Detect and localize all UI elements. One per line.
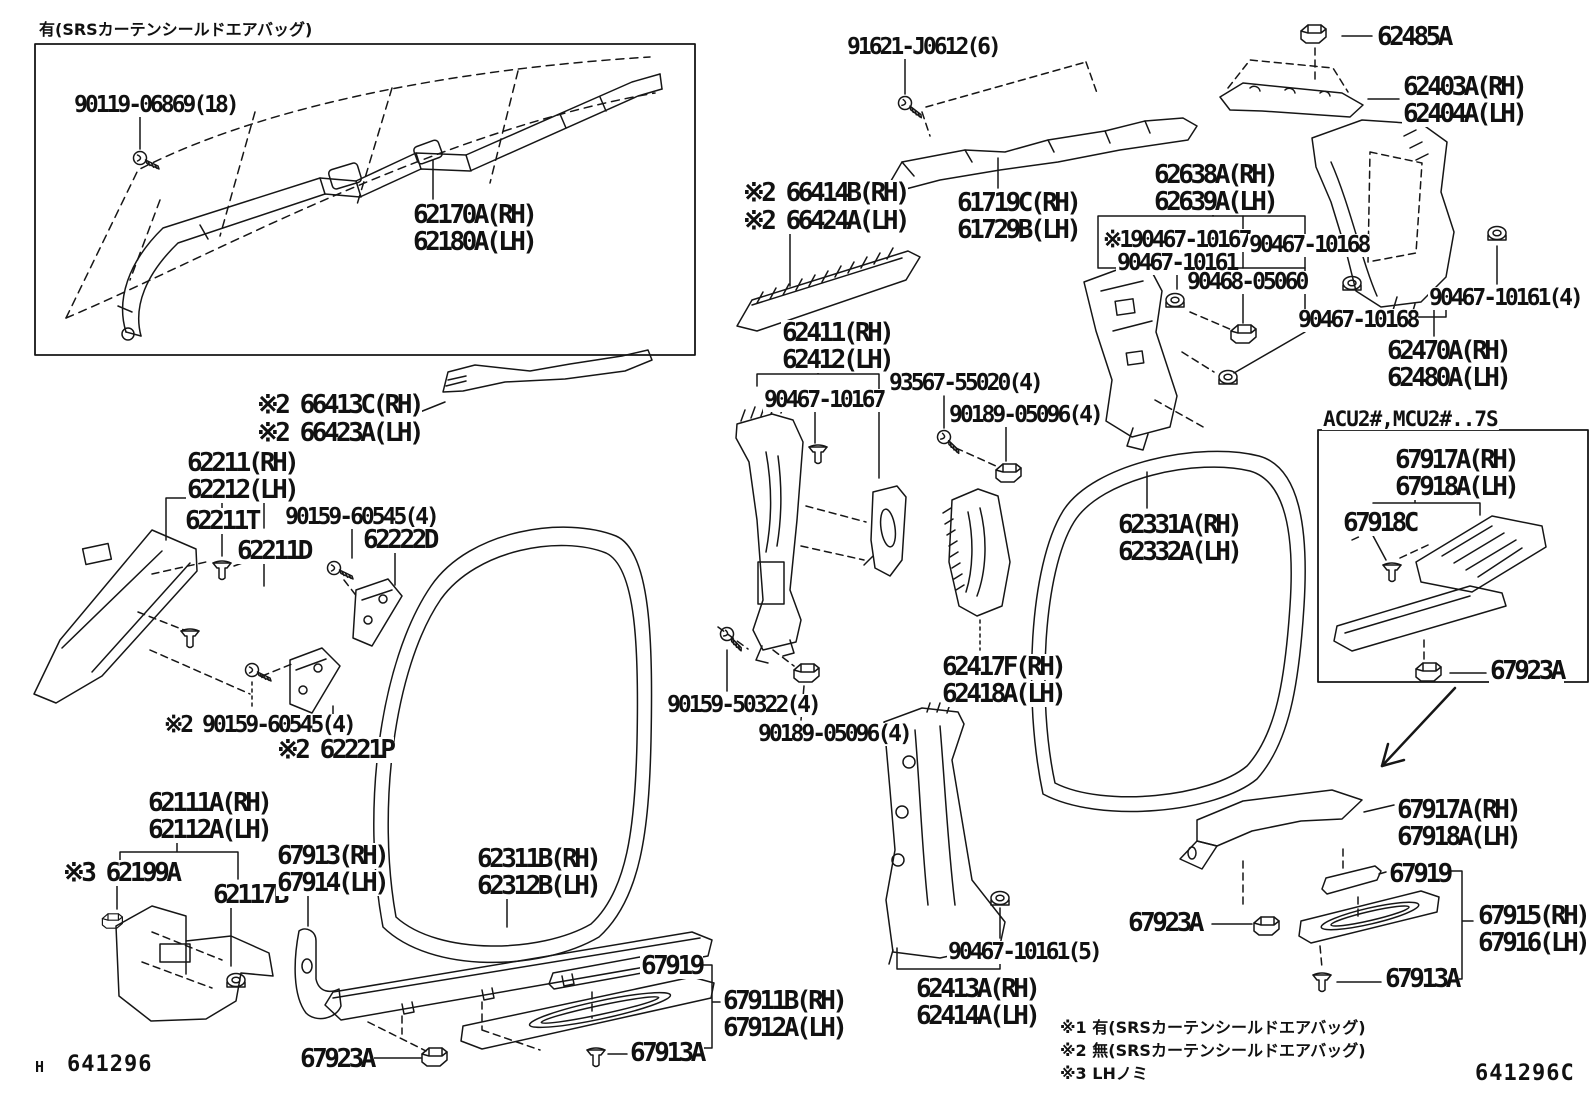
part-label: 67915(RH) bbox=[1477, 903, 1588, 929]
part-label: 62404A(LH) bbox=[1402, 101, 1526, 127]
part-label: 62485A bbox=[1376, 24, 1451, 50]
part-label: 62411(RH) bbox=[781, 320, 892, 346]
part-label: 62418A(LH) bbox=[941, 681, 1065, 707]
srs-header-note: 有(SRSカーテンシールドエアバッグ) bbox=[38, 22, 313, 38]
part-label: ※2 66424A(LH) bbox=[742, 208, 908, 234]
part-label: 67918C bbox=[1342, 510, 1417, 536]
part-label: 62180A(LH) bbox=[412, 229, 536, 255]
part-label: 62413A(RH) bbox=[915, 976, 1039, 1002]
part-label: 67917A(RH) bbox=[1394, 447, 1518, 473]
part-label: 67918A(LH) bbox=[1396, 824, 1520, 850]
part-label: 67913A bbox=[629, 1040, 704, 1066]
part-label: 90119-06869(18) bbox=[73, 94, 238, 117]
part-label: 61729B(LH) bbox=[956, 217, 1080, 243]
part-label: 62414A(LH) bbox=[915, 1003, 1039, 1029]
drawing-number-right: 641296C bbox=[1474, 1063, 1576, 1085]
footnote-2: ※2 無(SRSカーテンシールドエアバッグ) bbox=[1059, 1043, 1367, 1059]
part-label: 90467-10161(4) bbox=[1428, 287, 1582, 310]
part-label: 67913(RH) bbox=[276, 843, 387, 869]
part-label: 62403A(RH) bbox=[1402, 74, 1526, 100]
footnote-3: ※3 LHノミ bbox=[1059, 1066, 1149, 1082]
part-label: ※190467-10167 bbox=[1102, 229, 1250, 252]
part-label: 90468-05060 bbox=[1186, 271, 1307, 294]
part-label: 67923A bbox=[299, 1046, 374, 1072]
part-label: 67911B(RH) bbox=[722, 988, 846, 1014]
parts-diagram-page: 有(SRSカーテンシールドエアバッグ) ACU2#,MCU2#..7S ※1 有… bbox=[0, 0, 1592, 1099]
acu-box-title: ACU2#,MCU2#..7S bbox=[1322, 409, 1499, 430]
part-label: 62211(RH) bbox=[186, 450, 297, 476]
part-label: 90189-05096(4) bbox=[948, 404, 1102, 427]
part-label: 62639A(LH) bbox=[1153, 189, 1277, 215]
part-label: ※2 66423A(LH) bbox=[256, 420, 422, 446]
part-label: ※2 66413C(RH) bbox=[256, 392, 422, 418]
part-label: 62638A(RH) bbox=[1153, 162, 1277, 188]
part-label: 62417F(RH) bbox=[941, 654, 1065, 680]
part-label: 90467-10168 bbox=[1297, 309, 1418, 332]
part-label: 90189-05096(4) bbox=[757, 723, 911, 746]
part-label: 90467-10167 bbox=[763, 389, 884, 412]
part-label: 90159-50322(4) bbox=[666, 694, 820, 717]
part-label: 62332A(LH) bbox=[1117, 539, 1241, 565]
part-label: 61719C(RH) bbox=[956, 190, 1080, 216]
part-label: 62470A(RH) bbox=[1386, 338, 1510, 364]
part-label: ※2 90159-60545(4) bbox=[163, 714, 355, 737]
drawing-number-prefix: H bbox=[34, 1060, 45, 1075]
part-label: 62311B(RH) bbox=[476, 846, 600, 872]
part-label: 67919 bbox=[1388, 861, 1451, 887]
part-label: ※2 62221P bbox=[276, 737, 394, 763]
part-label: 93567-55020(4) bbox=[888, 372, 1042, 395]
part-label: 67913A bbox=[1384, 966, 1459, 992]
part-label: 62170A(RH) bbox=[412, 202, 536, 228]
part-label: 62331A(RH) bbox=[1117, 512, 1241, 538]
part-label: 91621-J0612(6) bbox=[846, 36, 1000, 59]
part-label: 62211D bbox=[236, 538, 311, 564]
part-label: 67917A(RH) bbox=[1396, 797, 1520, 823]
footnote-1: ※1 有(SRSカーテンシールドエアバッグ) bbox=[1059, 1020, 1367, 1036]
part-label: 62212(LH) bbox=[186, 477, 297, 503]
part-label: 67918A(LH) bbox=[1394, 474, 1518, 500]
part-label: 62312B(LH) bbox=[476, 873, 600, 899]
drawing-number-left: 641296 bbox=[66, 1054, 153, 1076]
part-label: 62112A(LH) bbox=[147, 817, 271, 843]
part-label: 67914(LH) bbox=[276, 870, 387, 896]
part-label: 67916(LH) bbox=[1477, 930, 1588, 956]
part-label: 90467-10168 bbox=[1248, 234, 1369, 257]
part-label: 90467-10161(5) bbox=[947, 941, 1101, 964]
label-layer: 有(SRSカーテンシールドエアバッグ) ACU2#,MCU2#..7S ※1 有… bbox=[0, 0, 1592, 1099]
part-label: 62222D bbox=[362, 527, 437, 553]
part-label: 62211T bbox=[184, 508, 259, 534]
part-label: 67923A bbox=[1489, 658, 1564, 684]
part-label: ※2 66414B(RH) bbox=[742, 180, 908, 206]
part-label: 62111A(RH) bbox=[147, 790, 271, 816]
part-label: 62480A(LH) bbox=[1386, 365, 1510, 391]
part-label: 67923A bbox=[1127, 910, 1202, 936]
part-label: 67912A(LH) bbox=[722, 1015, 846, 1041]
part-label: ※3 62199A bbox=[62, 860, 180, 886]
part-label: 67919 bbox=[640, 953, 703, 979]
part-label: 62412(LH) bbox=[781, 347, 892, 373]
